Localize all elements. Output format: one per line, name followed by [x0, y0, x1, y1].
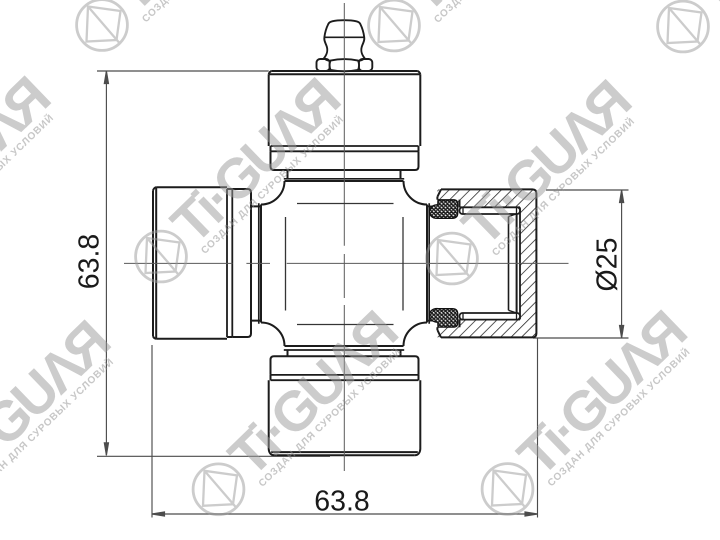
svg-text:63.8: 63.8 [314, 486, 369, 518]
svg-text:Ø25: Ø25 [591, 238, 623, 292]
svg-text:63.8: 63.8 [74, 234, 106, 289]
